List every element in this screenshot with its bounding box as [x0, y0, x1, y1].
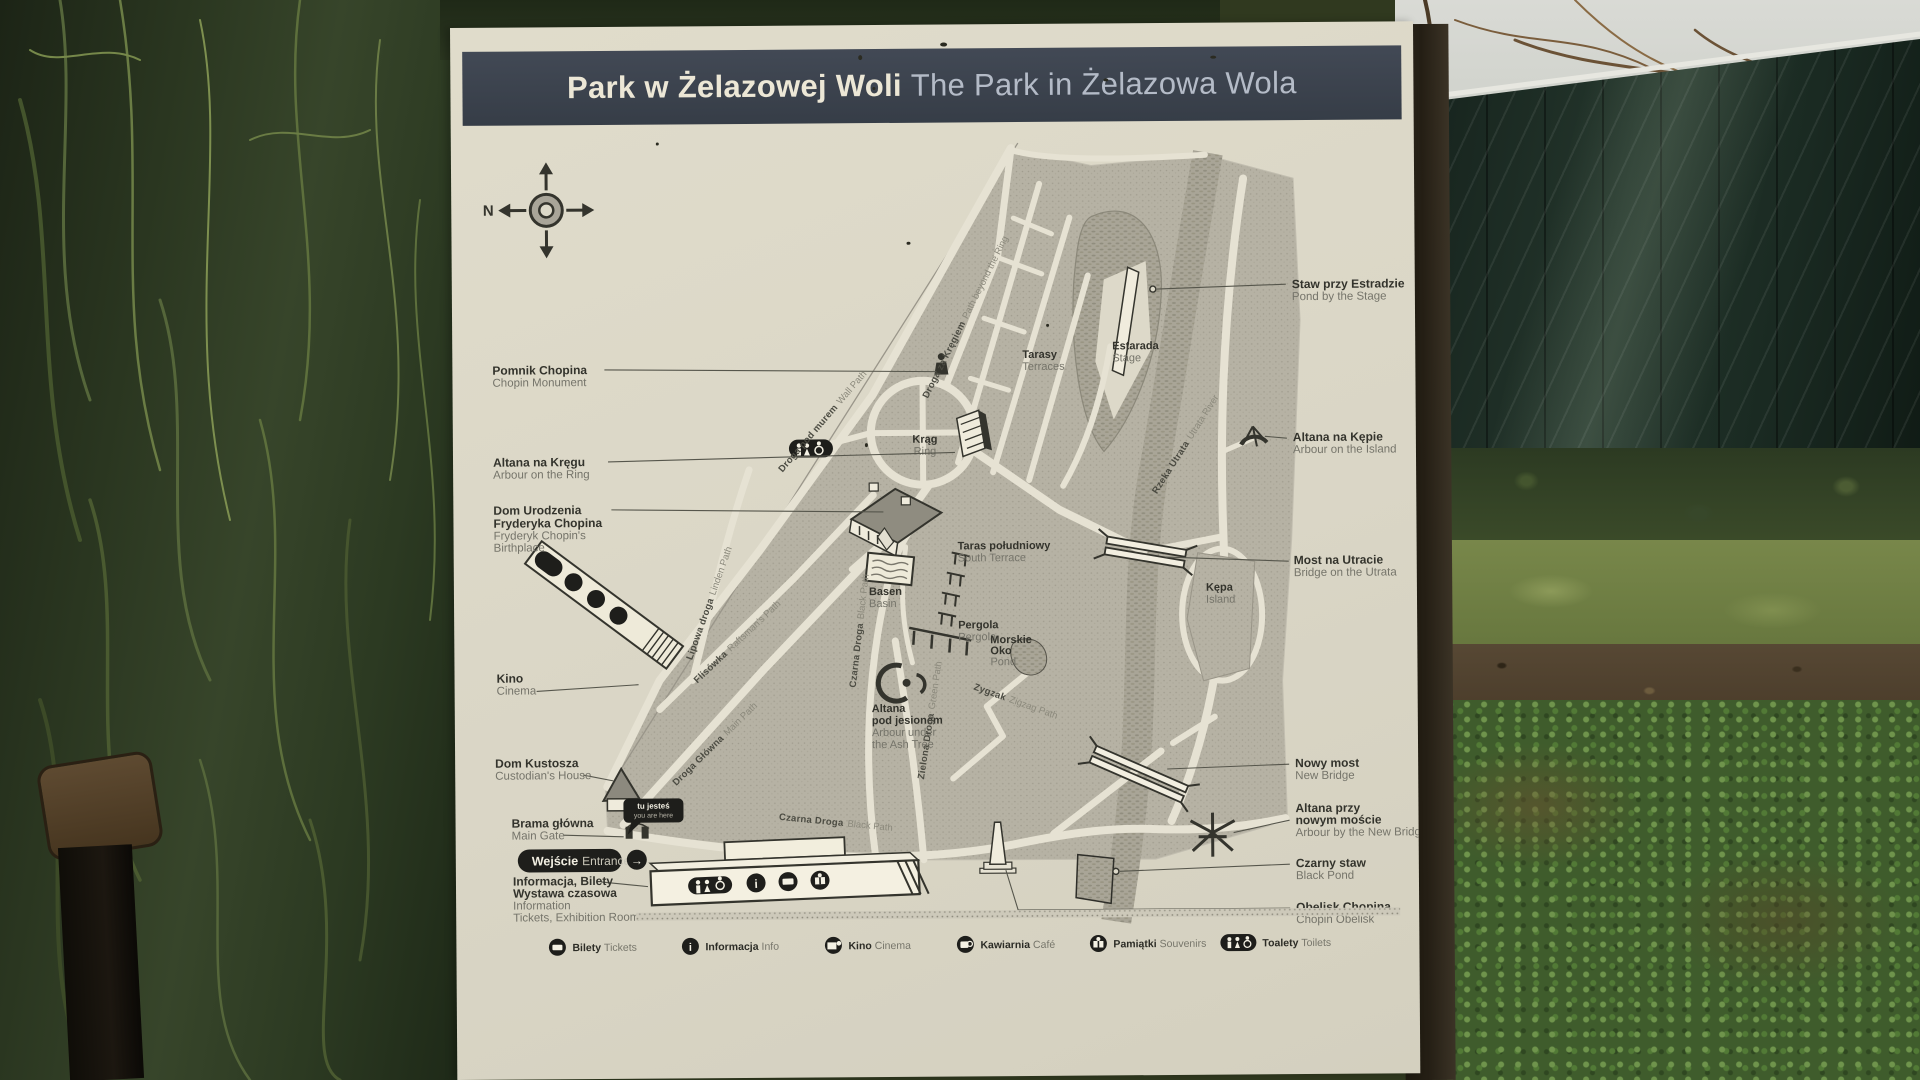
- entrance-badge: WejścieEntrance →: [518, 849, 647, 873]
- svg-text:Stage: Stage: [1112, 352, 1141, 364]
- svg-text:Altana: Altana: [872, 703, 907, 715]
- svg-text:Black Pond: Black Pond: [1296, 870, 1354, 882]
- svg-text:KinoCinema: KinoCinema: [848, 940, 911, 952]
- svg-text:Tickets, Exhibition Room: Tickets, Exhibition Room: [513, 912, 639, 925]
- svg-text:Fryderyk Chopin's: Fryderyk Chopin's: [494, 530, 587, 543]
- svg-text:Dom Kustosza: Dom Kustosza: [495, 756, 579, 771]
- svg-text:Brama główna: Brama główna: [512, 816, 594, 831]
- compass-hole: [539, 203, 553, 217]
- legend-tickets: BiletyTickets: [549, 938, 637, 956]
- svg-text:Kępa: Kępa: [1206, 582, 1234, 594]
- compass-arrow-e: [582, 203, 594, 217]
- dirt-speck: [1046, 324, 1049, 327]
- svg-text:Terraces: Terraces: [1022, 361, 1065, 373]
- svg-text:Krąg: Krąg: [912, 434, 937, 446]
- compass-arrow-s: [540, 246, 554, 258]
- map-label-krag: Krąg Ring: [912, 434, 937, 458]
- callout-custodian-house: Dom Kustosza Custodian's House: [495, 756, 613, 783]
- dirt-speck: [1103, 78, 1108, 81]
- svg-text:Arbour by the New Bridge: Arbour by the New Bridge: [1296, 826, 1421, 839]
- legend-toilets: ToaletyToilets: [1220, 933, 1331, 951]
- callout-cinema: Kino Cinema: [496, 671, 638, 698]
- callout-information: Informacja, Bilety Wystawa czasowa Infor…: [513, 874, 648, 925]
- svg-text:i: i: [754, 877, 758, 891]
- compass-arrow-w: [498, 204, 510, 218]
- basin-icon: [866, 553, 915, 585]
- svg-text:Staw przy Estradzie: Staw przy Estradzie: [1292, 276, 1405, 291]
- svg-text:Basen: Basen: [869, 586, 902, 598]
- dirt-speck: [1210, 56, 1216, 59]
- svg-text:nowym moście: nowym moście: [1296, 813, 1382, 828]
- svg-text:i: i: [689, 942, 692, 954]
- svg-text:Altana na Kręgu: Altana na Kręgu: [493, 455, 585, 470]
- svg-text:New Bridge: New Bridge: [1295, 770, 1355, 782]
- you-are-here-pl: tu jesteś: [637, 801, 670, 810]
- sign-title-pl: Park w Żelazowej Woli: [567, 68, 902, 106]
- compass-rose: N: [483, 162, 595, 259]
- legend-cafe: KawiarniaCafé: [957, 935, 1056, 953]
- svg-text:Pergola: Pergola: [958, 619, 999, 631]
- svg-text:Pond: Pond: [990, 656, 1016, 668]
- svg-text:Ring: Ring: [914, 446, 937, 458]
- svg-text:→: →: [631, 854, 643, 868]
- svg-text:Wystawa czasowa: Wystawa czasowa: [513, 886, 617, 901]
- svg-text:Bridge on the Utrata: Bridge on the Utrata: [1294, 566, 1398, 579]
- dirt-speck: [872, 87, 875, 90]
- dirt-speck: [865, 443, 868, 447]
- svg-text:Cinema: Cinema: [497, 685, 537, 697]
- title-gap: [902, 77, 911, 95]
- svg-text:Information: Information: [513, 900, 571, 912]
- svg-text:Estarada: Estarada: [1112, 340, 1159, 352]
- svg-text:Island: Island: [1206, 594, 1235, 606]
- toilets-icon: [688, 876, 733, 895]
- legend-souvenirs: PamiątkiSouvenirs: [1090, 934, 1207, 952]
- cinema-strip-icon: [525, 541, 683, 668]
- park-map: N: [451, 119, 1421, 1073]
- dirt-speck: [940, 43, 947, 47]
- photo-scene: Park w Żelazowej Woli The Park in Żelazo…: [0, 0, 1920, 1080]
- svg-text:KawiarniaCafé: KawiarniaCafé: [980, 939, 1055, 952]
- svg-text:Nowy most: Nowy most: [1295, 756, 1359, 770]
- sign-title-bar: Park w Żelazowej Woli The Park in Żelazo…: [462, 45, 1401, 126]
- svg-text:Arbour on the Ring: Arbour on the Ring: [493, 469, 590, 482]
- north-edge-path: [1011, 149, 1205, 159]
- svg-text:PamiątkiSouvenirs: PamiątkiSouvenirs: [1113, 938, 1206, 951]
- svg-text:Kino: Kino: [496, 672, 523, 686]
- svg-text:Chopin Monument: Chopin Monument: [492, 377, 587, 390]
- legend-info: i InformacjaInfo: [682, 937, 779, 955]
- you-are-here-en: you are here: [634, 812, 673, 819]
- legend-cinema: KinoCinema: [825, 936, 911, 954]
- svg-text:Most na Utracie: Most na Utracie: [1294, 552, 1384, 567]
- svg-text:Main Gate: Main Gate: [512, 830, 565, 842]
- svg-text:InformacjaInfo: InformacjaInfo: [705, 941, 779, 954]
- dirt-speck: [907, 242, 911, 245]
- glass-building: [1428, 30, 1920, 480]
- dirt-speck: [858, 55, 862, 60]
- svg-text:Fryderyka Chopina: Fryderyka Chopina: [493, 516, 602, 531]
- ivy-groundcover: [1428, 700, 1920, 1080]
- callout-black-pond: Czarny staw Black Pond: [1113, 856, 1367, 884]
- svg-text:Pond by the Stage: Pond by the Stage: [1292, 290, 1387, 303]
- svg-text:Altana na Kępie: Altana na Kępie: [1293, 429, 1383, 444]
- sign-title-en: The Park in Żelazowa Wola: [911, 65, 1297, 104]
- callout-chopin-monument: Pomnik Chopina Chopin Monument: [492, 361, 936, 390]
- svg-text:Taras południowy: Taras południowy: [958, 540, 1052, 553]
- map-legend: BiletyTickets i InformacjaInfo KinoCinem…: [549, 933, 1331, 955]
- dirt-speck: [656, 143, 659, 146]
- svg-text:Pomnik Chopina: Pomnik Chopina: [492, 363, 587, 378]
- svg-text:Czarny staw: Czarny staw: [1296, 856, 1367, 870]
- black-pond: [1076, 854, 1114, 903]
- svg-text:Basin: Basin: [869, 598, 897, 610]
- map-label-kepa: Kępa Island: [1206, 582, 1236, 606]
- svg-text:Arbour on the Island: Arbour on the Island: [1293, 443, 1397, 456]
- compass-north-label: N: [483, 203, 494, 220]
- svg-text:BiletyTickets: BiletyTickets: [572, 942, 637, 954]
- svg-text:Custodian's House: Custodian's House: [495, 770, 591, 783]
- compass-arrow-n: [539, 162, 553, 174]
- svg-text:ToaletyToilets: ToaletyToilets: [1262, 937, 1331, 949]
- dark-post: [58, 844, 144, 1080]
- svg-text:South Terrace: South Terrace: [958, 552, 1026, 564]
- svg-text:Birthplace: Birthplace: [494, 542, 545, 554]
- park-sign: Park w Żelazowej Woli The Park in Żelazo…: [450, 21, 1420, 1080]
- svg-text:Tarasy: Tarasy: [1022, 349, 1058, 361]
